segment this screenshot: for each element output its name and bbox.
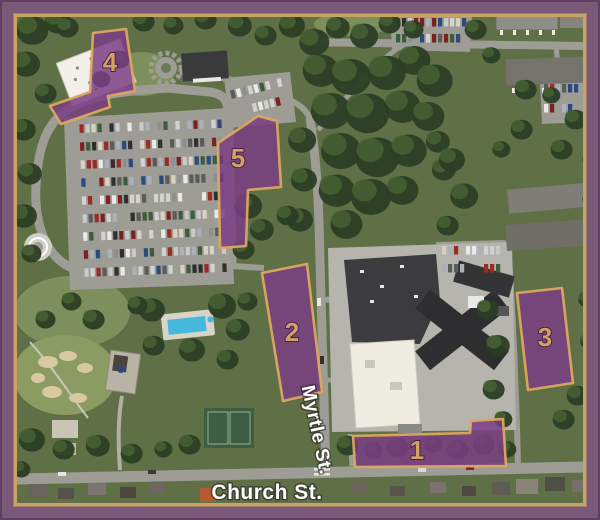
zone-number: 5 <box>231 143 245 173</box>
satellite-imagery: 12345 Myrtle St. Church St. <box>11 2 600 504</box>
aerial-map: 12345 Myrtle St. Church St. <box>0 0 600 520</box>
zone-number: 1 <box>410 435 424 465</box>
dark-roof-building <box>181 50 229 83</box>
pool <box>161 309 215 340</box>
street-label-church: Church St. <box>211 481 322 504</box>
zone-number: 3 <box>538 322 552 352</box>
map-frame: 12345 Myrtle St. Church St. <box>0 0 600 520</box>
zone-number: 4 <box>103 47 118 77</box>
zone-3[interactable]: 3 <box>517 288 573 390</box>
house-grounds <box>105 350 140 394</box>
zone-number: 2 <box>285 317 299 347</box>
